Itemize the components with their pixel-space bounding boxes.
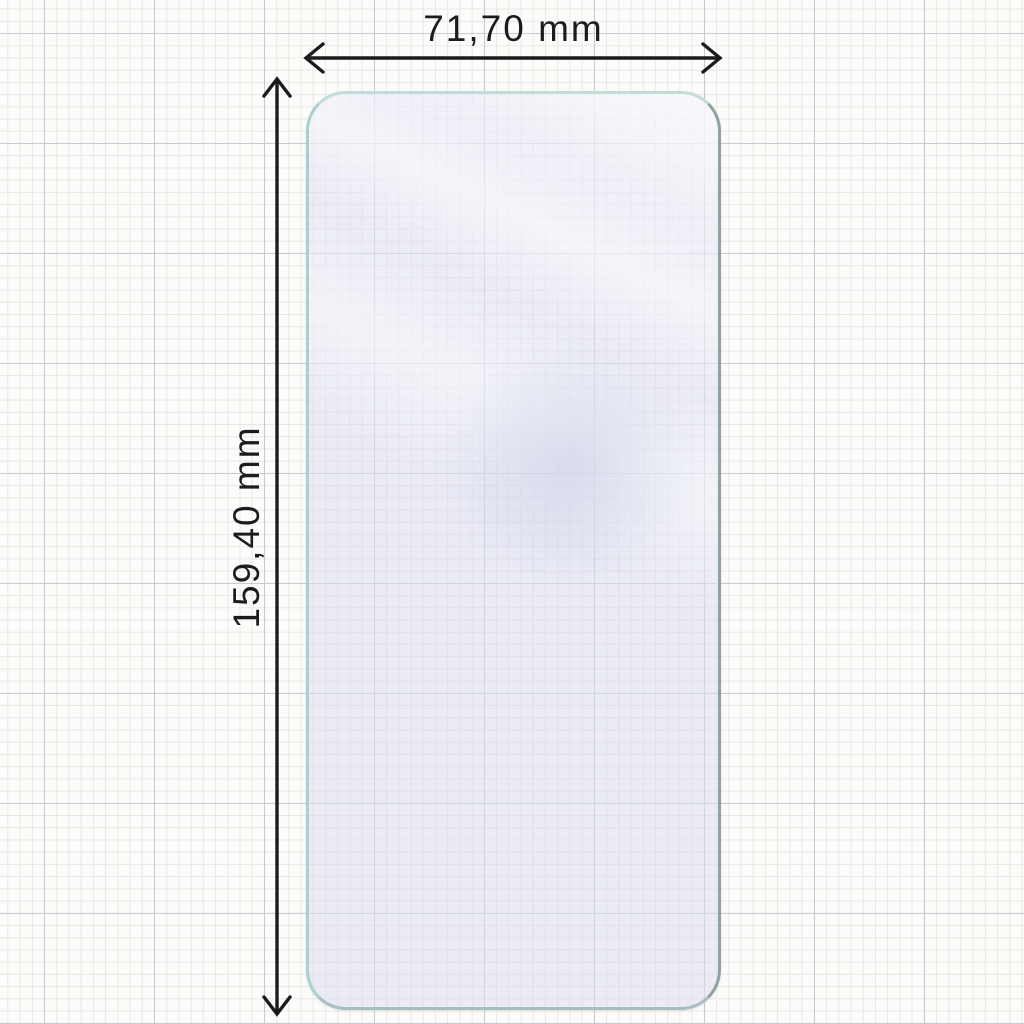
graph-paper-background: 71,70 mm 159,40 mm [0, 0, 1024, 1024]
height-dimension-label: 159,40 mm [224, 367, 270, 687]
glass-shade [439, 344, 699, 584]
screen-protector-glass [306, 91, 721, 1010]
glass-surface [309, 94, 718, 1007]
glass-reflection-streak [309, 94, 718, 357]
width-dimension-label: 71,70 mm [306, 6, 721, 52]
